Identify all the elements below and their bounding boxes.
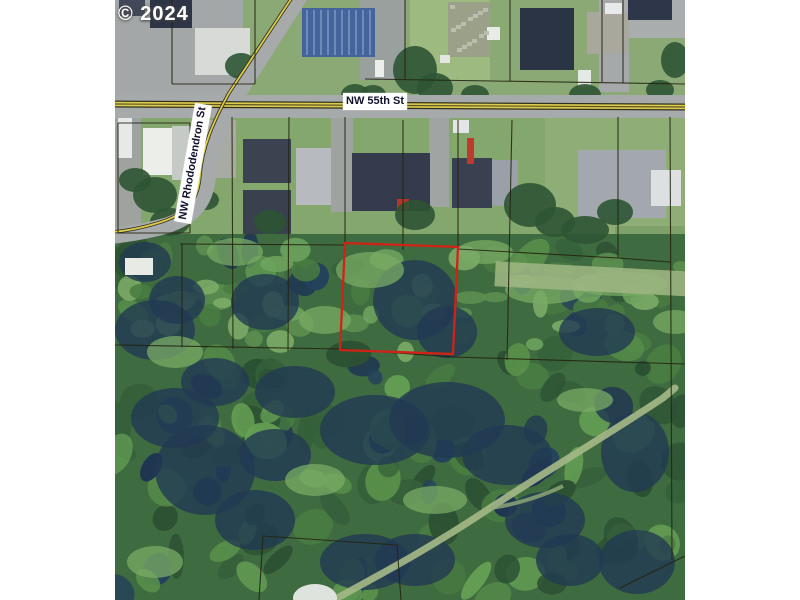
map-scene xyxy=(115,0,685,600)
copyright-watermark: © 2024 xyxy=(118,3,189,26)
aerial-map-image: © 2024 NW 55th St NW Rhododendron St xyxy=(115,0,685,600)
trailer-in-forest xyxy=(125,258,153,275)
street-label-nw-55th-st: NW 55th St xyxy=(343,93,407,110)
page-background: © 2024 NW 55th St NW Rhododendron St xyxy=(0,0,800,600)
